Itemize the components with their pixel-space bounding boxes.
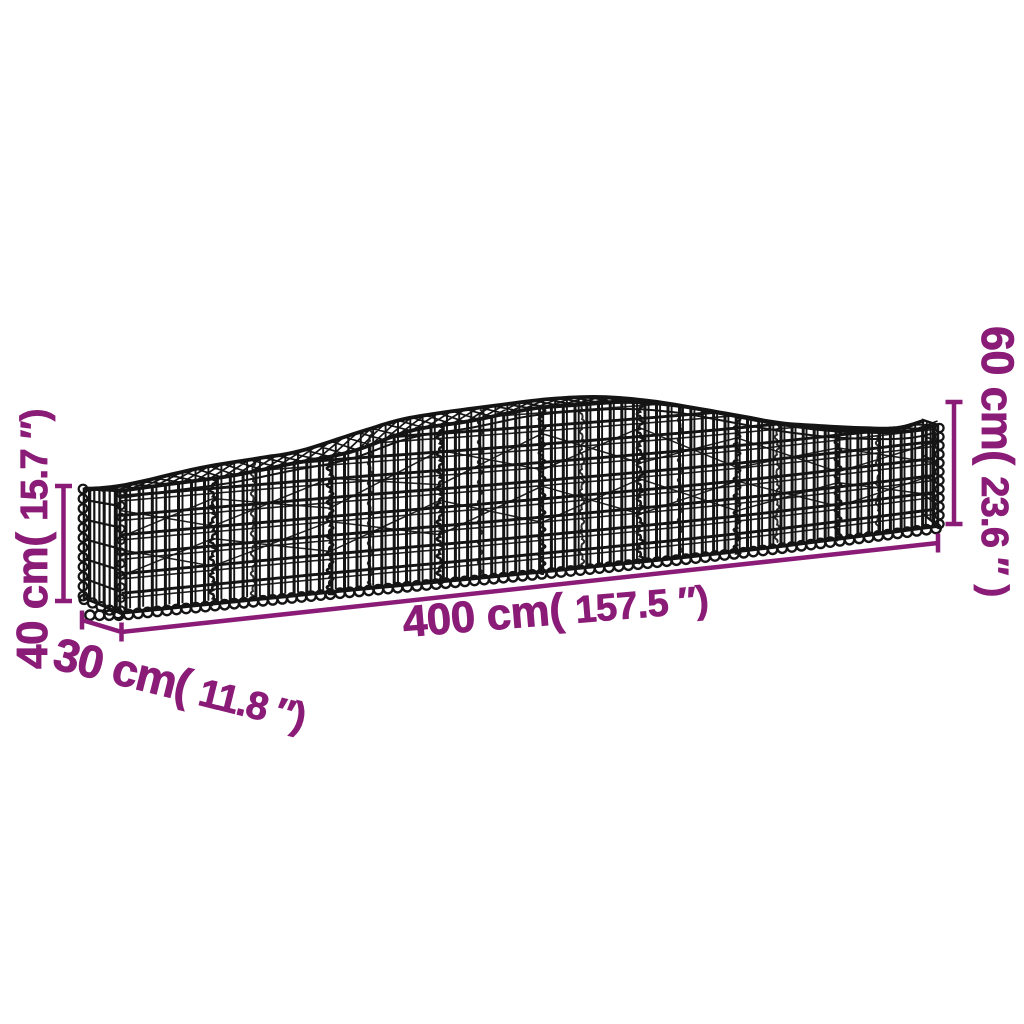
svg-text:40 cm( 15.7 ″): 40 cm( 15.7 ″) [8, 409, 57, 669]
svg-text:60 cm( 23.6 ″ ): 60 cm( 23.6 ″ ) [972, 326, 1023, 597]
